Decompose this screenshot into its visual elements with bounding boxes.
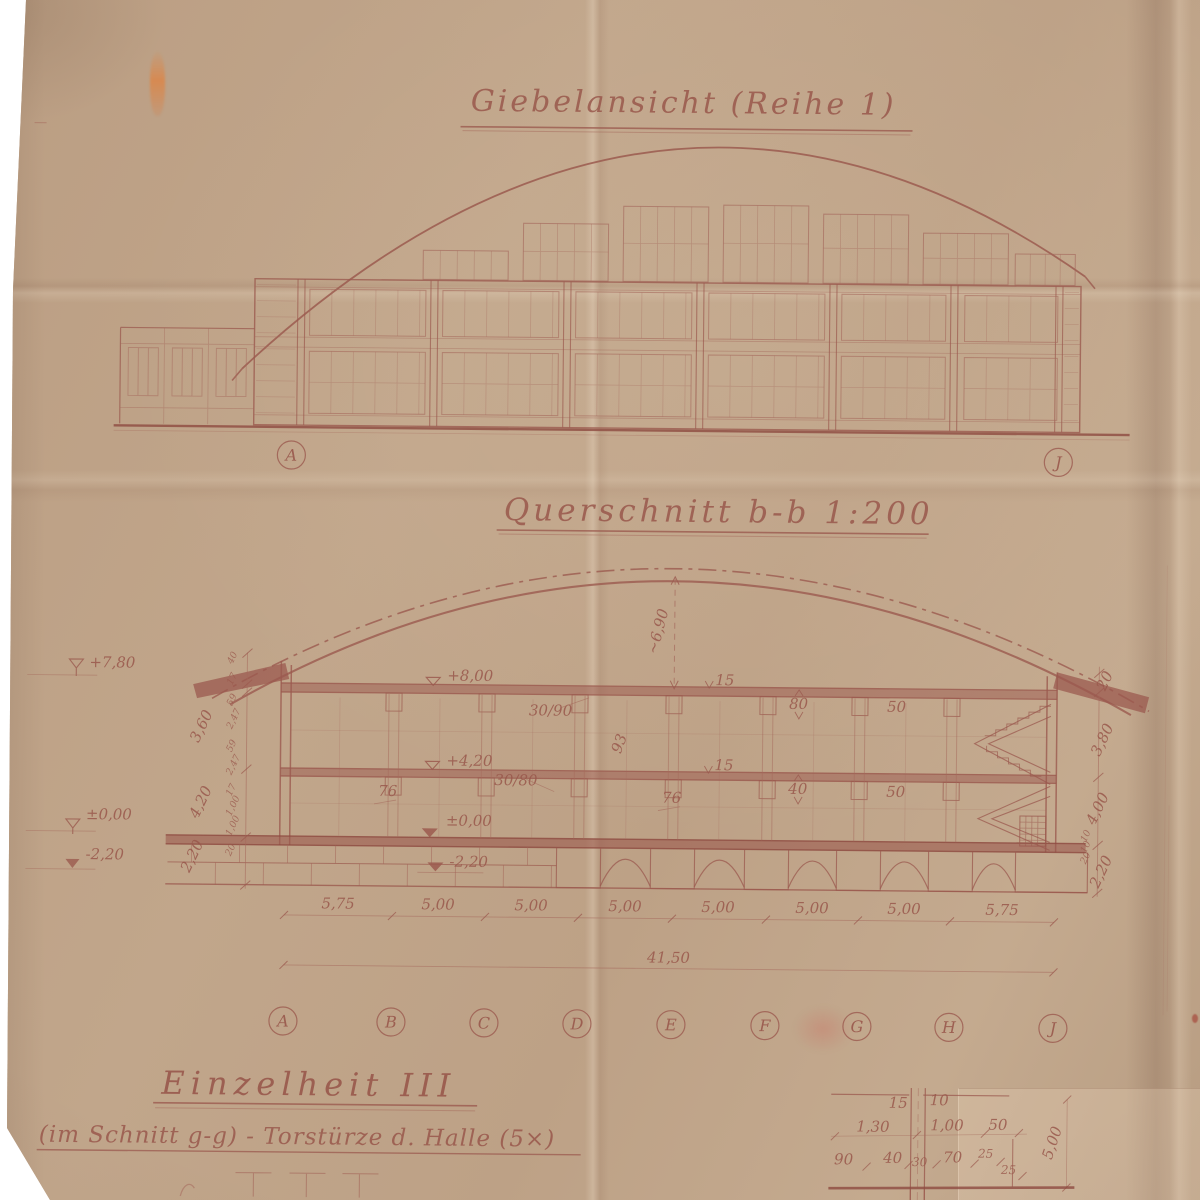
- detail-height-dim: 5,00: [1038, 1124, 1066, 1162]
- left-dim-s3: 2,47: [224, 706, 244, 732]
- left-dim-s0: 40: [225, 650, 241, 667]
- bay-dim-6: 5,00: [887, 900, 921, 918]
- floor-slab-dim: 15: [714, 756, 733, 774]
- roof-beam-width: 50: [887, 698, 907, 716]
- detail-dim-25b: 25: [1000, 1163, 1016, 1177]
- grid-letter-d: D: [569, 1014, 583, 1033]
- gable-ground-line: [114, 425, 1130, 435]
- detail-rebar-marks: [180, 1172, 378, 1198]
- level-foundation: -2,20: [449, 853, 488, 871]
- cross-section: Querschnitt b-b 1:200 ~6,90: [24, 488, 1172, 1044]
- bay-dim-1: 5,00: [421, 895, 455, 913]
- left-dim-s7: 1,00: [224, 794, 243, 818]
- bay-dim-5: 5,00: [795, 899, 829, 917]
- detail-dim-90: 90: [834, 1150, 854, 1168]
- detail-dim-10: 10: [930, 1091, 950, 1109]
- left-dim-s4: 59: [224, 738, 239, 754]
- facade-piers: [297, 279, 1063, 432]
- floor-beam-depth: 40: [787, 780, 808, 798]
- column-size-a: 76: [378, 782, 398, 800]
- detail-dim-100: 1,00: [930, 1116, 964, 1134]
- detail-dim-130: 1,30: [856, 1117, 890, 1135]
- left-dim-s5: 2,47: [224, 752, 244, 778]
- level-zero-left: ±0,00: [86, 805, 133, 823]
- detail-dim-50: 50: [988, 1116, 1008, 1134]
- paper-sheet: Giebelansicht (Reihe 1): [0, 0, 1200, 1200]
- grid-letter-e: E: [664, 1015, 677, 1034]
- arch-rise-dim: ~6,90: [643, 606, 672, 655]
- gable-grid-j: J: [1044, 448, 1072, 476]
- left-dim-s2: 59: [225, 692, 240, 708]
- bay-dim-3: 5,00: [608, 897, 642, 915]
- detail-dim-30: 30: [912, 1155, 928, 1169]
- grid-bubbles: A B C D E F G H J: [269, 1007, 1067, 1043]
- eave-left: [193, 662, 289, 699]
- gable-title: Giebelansicht (Reihe 1): [471, 84, 897, 123]
- grid-letter-a: A: [275, 1012, 289, 1031]
- left-dim-2: 4,20: [185, 783, 216, 822]
- bay-dim-2: 5,00: [514, 896, 548, 914]
- detail-subtitle: (im Schnitt g-g) - Torstürze d. Halle (5…: [39, 1122, 556, 1153]
- gable-grid-letter-j: J: [1052, 453, 1063, 472]
- detail-iii: Einzelheit III (im Schnitt g-g) - Torstü…: [36, 1063, 1075, 1200]
- detail-title: Einzelheit III: [160, 1064, 456, 1105]
- bay-dim-4: 5,00: [701, 898, 735, 916]
- level-roof: +8,00: [447, 667, 494, 685]
- left-dim-s8: 1,00: [223, 814, 242, 838]
- detail-dim-25a: 25: [977, 1147, 993, 1161]
- grid-letter-f: F: [758, 1016, 771, 1035]
- bottom-dimensions: 5,75 5,00 5,00 5,00 5,00 5,00 5,00 5,75 …: [279, 894, 1058, 976]
- grid-letter-g: G: [850, 1017, 863, 1036]
- level-floor: +4,20: [446, 752, 493, 770]
- floor-beam-size: 30/80: [494, 771, 538, 789]
- grid-letter-b: B: [384, 1013, 397, 1032]
- left-dim-1: 3,60: [186, 707, 217, 745]
- blueprint-drawing: Giebelansicht (Reihe 1): [0, 0, 1200, 1200]
- clerestory-windows: [423, 202, 1076, 285]
- gable-view: Giebelansicht (Reihe 1): [31, 80, 1133, 478]
- gable-grid-letter-a: A: [284, 446, 298, 465]
- gable-roof-arch: [242, 143, 1086, 377]
- grid-letter-h: H: [941, 1018, 957, 1037]
- floor-beam-width: 50: [886, 783, 906, 801]
- level-zero: ±0,00: [446, 812, 493, 830]
- level-parapet-left: +7,80: [89, 653, 136, 671]
- right-dim-1: 3,80: [1087, 720, 1118, 758]
- gable-grid-a: A: [277, 441, 305, 469]
- roof-beam-size: 30/90: [529, 701, 573, 719]
- annex-left: [120, 327, 255, 424]
- roof-slab-dim: 15: [715, 671, 734, 689]
- grid-letter-c: C: [478, 1013, 490, 1032]
- detail-dim-40: 40: [882, 1149, 903, 1167]
- right-dim-2: 4,00: [1082, 789, 1113, 828]
- detail-dim-15: 15: [889, 1094, 908, 1112]
- grid-letter-j: J: [1047, 1019, 1058, 1038]
- scanned-blueprint: Giebelansicht (Reihe 1): [0, 0, 1200, 1200]
- level-markers-left: +7,80 ±0,00 -2,20: [25, 653, 135, 870]
- total-dim: 41,50: [646, 948, 691, 966]
- roof-beam-depth: 80: [789, 695, 809, 713]
- bay-dim-0: 5,75: [321, 894, 355, 912]
- detail-lintel: 15 10 1,30 1,00 50 90 40 30 70 25 25 5,0…: [828, 1087, 1075, 1200]
- level-foundation-left: -2,20: [85, 845, 124, 863]
- detail-dim-70: 70: [943, 1148, 963, 1166]
- bay-dim-7: 5,75: [985, 901, 1019, 919]
- column-size-b: 76: [662, 789, 682, 807]
- section-title: Querschnitt b-b 1:200: [504, 492, 934, 532]
- wall-size: 93: [607, 731, 631, 755]
